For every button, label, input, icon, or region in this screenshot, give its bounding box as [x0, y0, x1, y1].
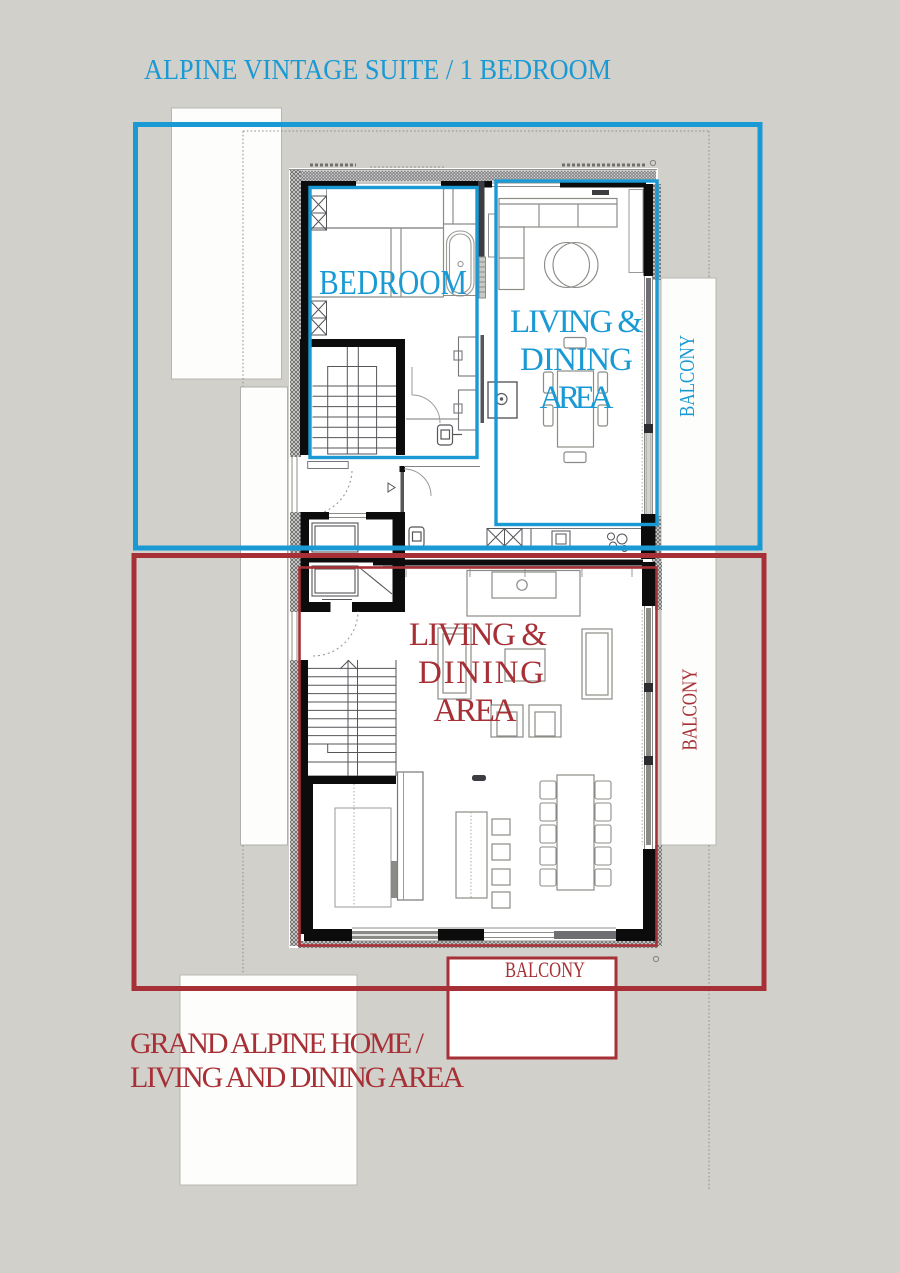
svg-text:LIVING AND DINING AREA: LIVING AND DINING AREA	[130, 1061, 464, 1094]
svg-text:LIVING &: LIVING &	[409, 617, 547, 653]
svg-text:DINING: DINING	[418, 655, 544, 691]
svg-text:DINING: DINING	[520, 342, 633, 378]
svg-text:BEDROOM: BEDROOM	[319, 263, 467, 302]
svg-text:LIVING &: LIVING &	[510, 304, 643, 340]
svg-text:BALCONY: BALCONY	[505, 957, 585, 982]
svg-text:BALCONY: BALCONY	[675, 335, 699, 417]
svg-text:BALCONY: BALCONY	[678, 669, 702, 751]
svg-text:AREA: AREA	[540, 380, 614, 416]
svg-text:ALPINE VINTAGE SUITE / 1 BEDRO: ALPINE VINTAGE SUITE / 1 BEDROOM	[144, 55, 611, 86]
svg-text:GRAND ALPINE HOME /: GRAND ALPINE HOME /	[130, 1027, 425, 1060]
svg-text:AREA: AREA	[434, 693, 517, 729]
